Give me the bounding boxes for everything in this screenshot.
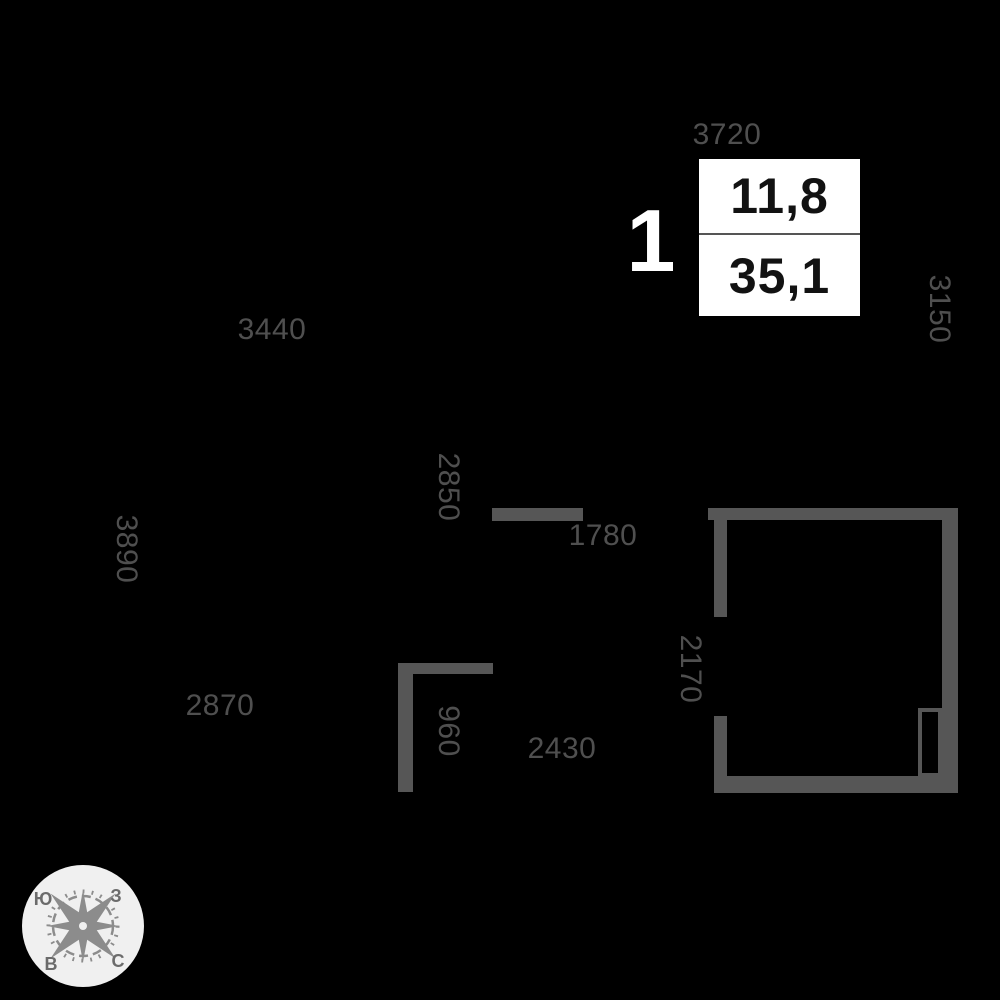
ventilation-shaft <box>918 708 942 777</box>
room-count: 1 <box>627 197 676 285</box>
wall-segment <box>714 716 727 778</box>
dimension-label: 960 <box>433 705 463 757</box>
dimension-label: 2430 <box>528 734 597 764</box>
compass-label-east: В <box>45 954 58 974</box>
total-area-value: 35,1 <box>699 235 860 316</box>
dimension-label: 3150 <box>924 275 954 344</box>
dimension-label: 1780 <box>569 521 638 551</box>
compass-center-hole <box>79 922 87 930</box>
dimension-label: 2850 <box>433 453 463 522</box>
compass-label-west: З <box>110 886 121 906</box>
compass-label-north: С <box>112 951 125 971</box>
dimension-label: 3440 <box>238 315 307 345</box>
floorplan: 372031503440285017803890217028709602430 … <box>0 0 1000 1000</box>
wall-segment <box>398 663 413 792</box>
wall-segment <box>708 508 958 520</box>
area-info-box: 11,8 35,1 <box>699 159 860 316</box>
dimension-label: 2170 <box>675 635 705 704</box>
living-area-value: 11,8 <box>699 159 860 233</box>
compass-rose: Ю З В С <box>21 864 145 988</box>
dimension-label: 3890 <box>111 515 141 584</box>
wall-segment <box>714 776 958 793</box>
wall-segment <box>714 508 727 617</box>
wall-segment <box>942 508 958 793</box>
compass-label-south: Ю <box>34 889 53 909</box>
dimension-label: 3720 <box>693 120 762 150</box>
dimension-label: 2870 <box>186 691 255 721</box>
